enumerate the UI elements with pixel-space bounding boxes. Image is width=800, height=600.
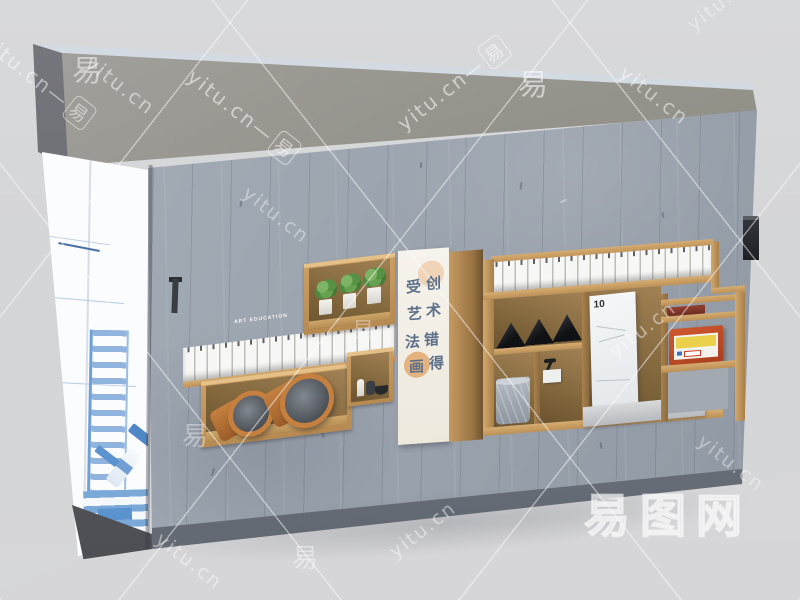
red-storage-box: [669, 325, 723, 365]
wall-speckle: [420, 162, 422, 168]
banner-character: 法: [405, 334, 420, 350]
red-box-label-blue-mark: [677, 351, 682, 355]
white-box: [543, 369, 561, 383]
white-bottle: [357, 379, 364, 397]
plant-pot: [367, 287, 381, 305]
scene-3d-display-wall-render: ART EDUCATION ART EDUCATION: [0, 0, 800, 600]
plant-box-interior: [309, 259, 390, 330]
right-unit-side-panel: [449, 249, 483, 442]
left-shelf-unit: [183, 294, 395, 460]
red-box-label-red-mark: [684, 350, 701, 357]
sketch-accent-line: [58, 242, 100, 252]
succulent-plant: [339, 272, 361, 295]
lamp-cubby: [540, 348, 582, 423]
red-box-label: [674, 333, 718, 360]
plant-display-box: [304, 253, 395, 335]
concrete-basket: [496, 376, 530, 425]
black-bowl: [375, 385, 388, 396]
pots-box-interior: [206, 369, 347, 442]
watermark-char-boxed: 易: [476, 33, 514, 71]
top-right-vertical: [711, 241, 719, 288]
frame-right-vertical: [735, 285, 745, 421]
small-cubby: [347, 347, 393, 407]
red-box-label-yellow-band: [676, 335, 716, 349]
right-open-bay: [668, 368, 728, 414]
panel-doodle-text: 10: [593, 299, 604, 311]
panel-sketch-line: [597, 379, 631, 381]
wall-hook: [171, 279, 178, 313]
panel-sketch-line: [599, 334, 625, 342]
panel-sketch-line: [597, 326, 627, 331]
succulent-plant: [363, 266, 386, 289]
plant-pot: [343, 293, 356, 310]
cubby-interior: [351, 352, 389, 403]
right-shelf-unit: 10: [483, 257, 755, 448]
banner-character: 受: [406, 279, 421, 295]
banner-character: 艺: [407, 306, 422, 322]
calligraphy-banner: 创 术 错 得 受 艺 法 画: [398, 247, 449, 445]
banner-character: 创: [426, 276, 441, 292]
banner-character: 画: [409, 359, 424, 375]
wall-sign-block: [743, 216, 759, 260]
banner-character: 术: [426, 303, 441, 319]
banner-character: 得: [429, 356, 444, 372]
succulent-plant: [315, 278, 337, 301]
dark-bottle: [366, 380, 375, 395]
plant-pot: [319, 299, 332, 316]
banner-character: 错: [424, 332, 439, 348]
watermark-site-text: yitu.cn: [683, 0, 758, 36]
desk-lamp-head: [544, 358, 556, 363]
frame-left-vertical: [483, 259, 494, 436]
